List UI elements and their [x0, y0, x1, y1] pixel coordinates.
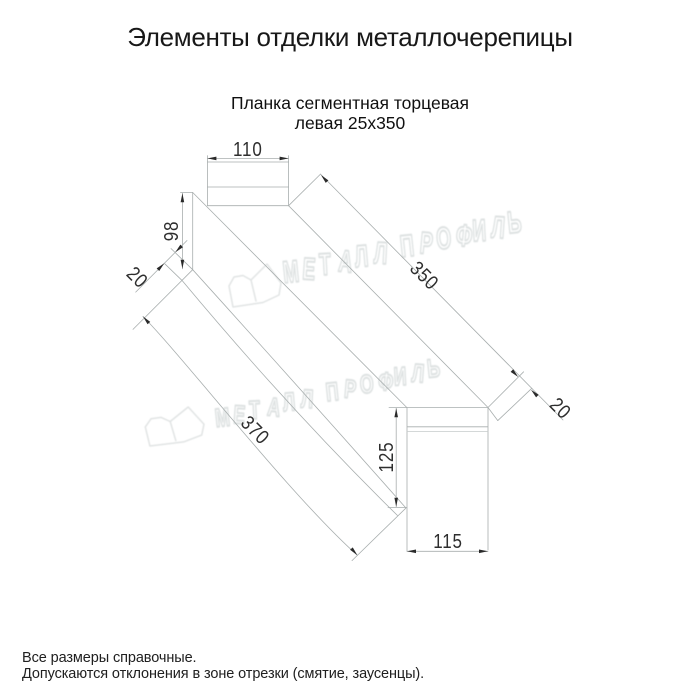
svg-text:20: 20: [545, 393, 576, 424]
svg-text:20: 20: [122, 262, 153, 293]
svg-text:И: И: [471, 214, 487, 248]
svg-text:115: 115: [433, 530, 463, 553]
svg-text:Л: Л: [282, 387, 297, 417]
svg-text:О: О: [435, 222, 452, 257]
svg-text:О: О: [359, 369, 375, 399]
svg-text:Л: Л: [353, 240, 369, 275]
svg-text:Е: Е: [301, 253, 316, 287]
svg-text:Ь: Ь: [506, 206, 523, 241]
svg-text:А: А: [337, 245, 354, 280]
svg-text:Л: Л: [490, 211, 506, 246]
svg-text:Т: Т: [318, 248, 332, 282]
svg-text:Р: Р: [343, 374, 357, 404]
svg-text:М: М: [214, 402, 232, 433]
svg-text:А: А: [266, 392, 282, 422]
svg-text:Л: Л: [373, 237, 388, 271]
svg-text:П: П: [324, 377, 340, 407]
svg-text:110: 110: [233, 138, 263, 161]
svg-text:Л: Л: [300, 384, 314, 414]
svg-text:Ф: Ф: [454, 219, 474, 254]
svg-text:98: 98: [160, 221, 183, 242]
svg-text:125: 125: [374, 442, 397, 473]
svg-text:П: П: [398, 229, 415, 264]
svg-text:И: И: [393, 362, 407, 392]
svg-text:Л: Л: [411, 358, 425, 388]
